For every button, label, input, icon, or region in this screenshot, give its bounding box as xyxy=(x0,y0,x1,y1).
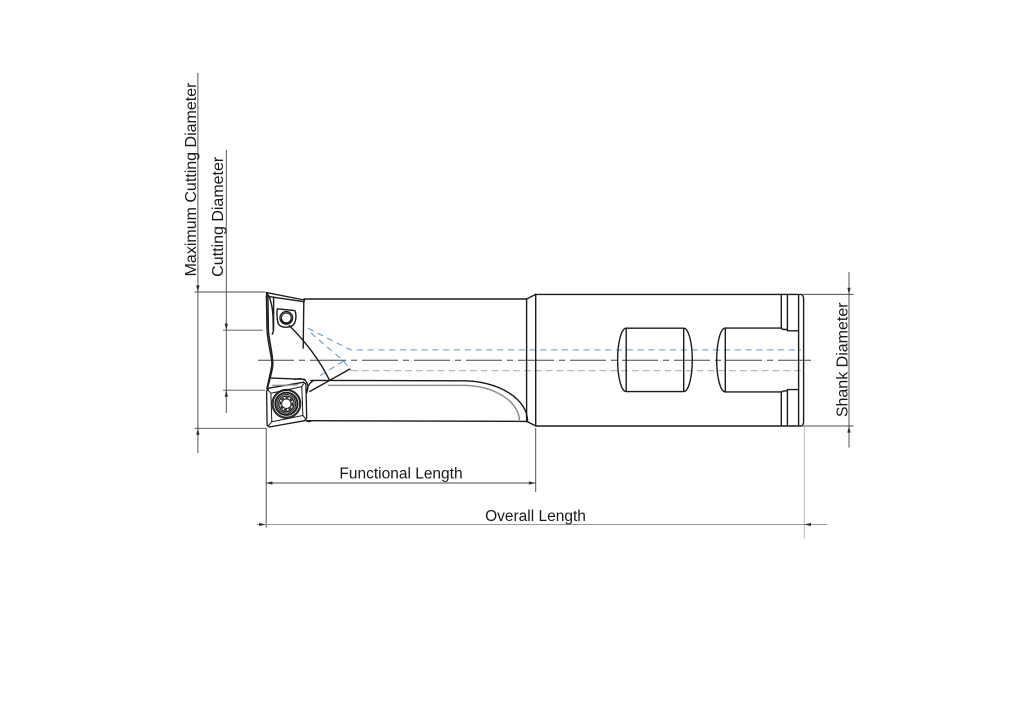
svg-text:Shank Diameter: Shank Diameter xyxy=(835,302,852,417)
svg-text:Functional Length: Functional Length xyxy=(339,466,462,483)
svg-text:Overall Length: Overall Length xyxy=(485,508,586,525)
svg-text:Cutting Diameter: Cutting Diameter xyxy=(210,156,227,277)
svg-text:Maximum Cutting Diameter: Maximum Cutting Diameter xyxy=(183,82,200,277)
